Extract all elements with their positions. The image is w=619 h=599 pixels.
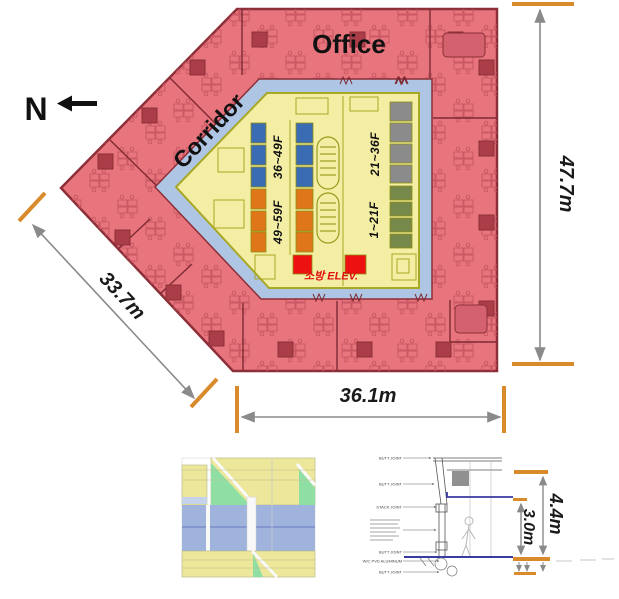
section-label-butt-joint-2: BUTT JOINT xyxy=(379,482,402,487)
facade-elevation-detail xyxy=(182,458,315,577)
section-label-aluminum: W/C PVD ALUMINUM xyxy=(363,559,402,564)
section-label-butt-joint-3: BUTT JOINT xyxy=(379,550,402,555)
section-label-stack-joint: STACK JOINT xyxy=(376,505,402,510)
dimension-clear-height-label: 3.0m xyxy=(520,509,536,545)
fire-elevator-label: 소방 ELEV. xyxy=(304,272,358,283)
floor-plan-diagram: Office Corridor N 47.7m 36.1m 33.7m 4.4m… xyxy=(0,0,619,599)
office-label: Office xyxy=(312,31,386,57)
elevator-bank-label-1-21F: 1~21F xyxy=(368,202,380,239)
north-label: N xyxy=(24,93,47,125)
section-label-butt-joint-1: BUTT JOINT xyxy=(379,456,402,461)
human-figure xyxy=(462,517,475,556)
elevator-bank-label-49-59F: 49~59F xyxy=(272,200,284,244)
watermark xyxy=(556,559,614,561)
dimension-bottom-label: 36.1m xyxy=(340,386,397,406)
dimension-right-label: 47.7m xyxy=(556,156,576,213)
elevator-bank-label-36-49F: 36~49F xyxy=(272,135,284,179)
elevator-bank-label-21-36F: 21~36F xyxy=(369,132,381,176)
section-label-butt-joint-4: BUTT JOINT xyxy=(379,570,402,575)
north-arrow-icon xyxy=(57,96,97,112)
dimension-floor-height-label: 4.4m xyxy=(547,493,565,534)
